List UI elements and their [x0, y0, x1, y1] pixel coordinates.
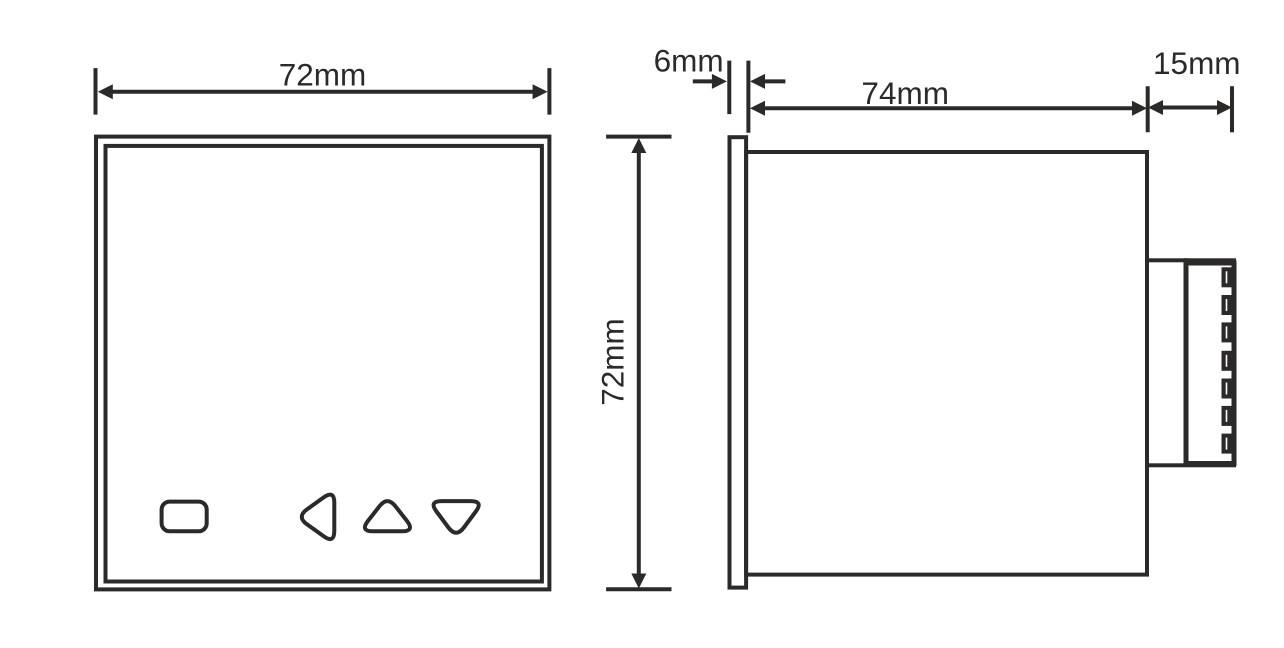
svg-text:72mm: 72mm: [595, 318, 631, 406]
svg-text:15mm: 15mm: [1153, 45, 1241, 81]
svg-text:72mm: 72mm: [279, 57, 367, 93]
svg-text:74mm: 74mm: [861, 75, 949, 111]
svg-text:6mm: 6mm: [654, 43, 724, 79]
